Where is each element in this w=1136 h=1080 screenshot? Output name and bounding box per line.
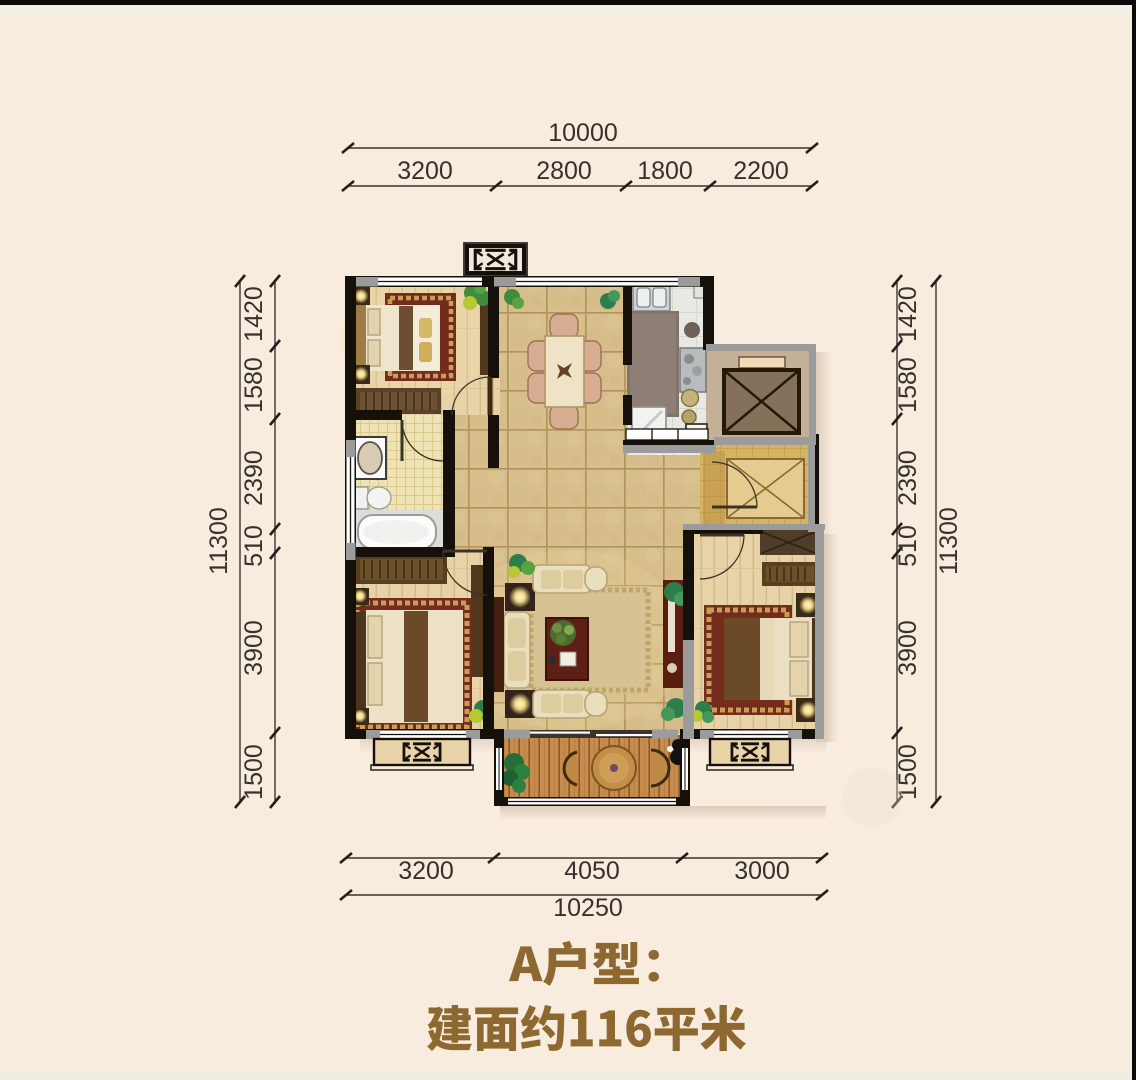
svg-text:4050: 4050 — [564, 857, 620, 885]
svg-text:3900: 3900 — [240, 620, 268, 676]
svg-text:3200: 3200 — [397, 157, 453, 185]
svg-text:1420: 1420 — [240, 286, 268, 342]
svg-text:1580: 1580 — [240, 357, 268, 413]
svg-text:2390: 2390 — [240, 450, 268, 506]
svg-text:11300: 11300 — [935, 507, 963, 575]
svg-text:1800: 1800 — [637, 157, 693, 185]
svg-text:1500: 1500 — [240, 744, 268, 800]
svg-text:2200: 2200 — [733, 157, 789, 185]
svg-text:1420: 1420 — [894, 286, 922, 342]
svg-text:2390: 2390 — [894, 450, 922, 506]
svg-text:510: 510 — [240, 525, 268, 567]
svg-text:3200: 3200 — [398, 857, 454, 885]
svg-text:3900: 3900 — [894, 620, 922, 676]
svg-text:3000: 3000 — [734, 857, 790, 885]
svg-text:510: 510 — [894, 525, 922, 567]
svg-text:1580: 1580 — [894, 357, 922, 413]
svg-text:10250: 10250 — [553, 894, 623, 922]
svg-text:2800: 2800 — [536, 157, 592, 185]
svg-text:10000: 10000 — [548, 119, 618, 147]
svg-text:11300: 11300 — [205, 507, 233, 575]
